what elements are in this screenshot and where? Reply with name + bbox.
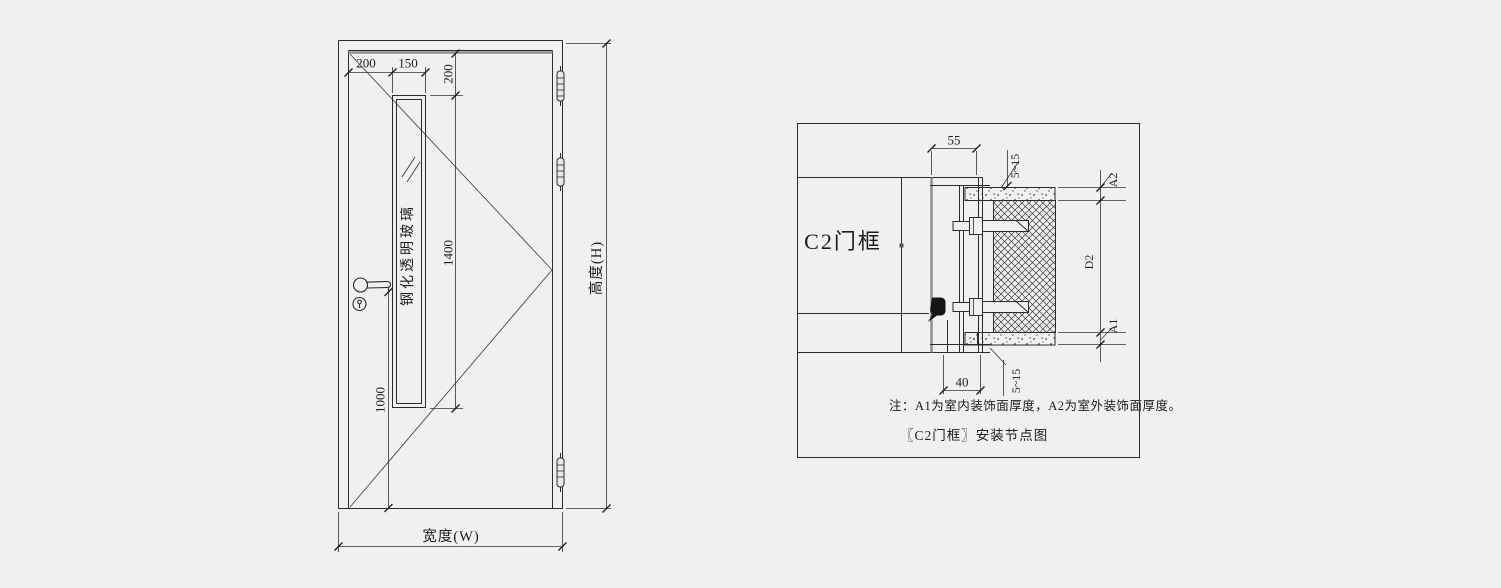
- door-handle: [353, 278, 391, 311]
- detail-caption: 〖C2门框〗安装节点图: [900, 429, 1048, 443]
- dim-handle-height: 1000: [374, 387, 387, 413]
- hinge-middle: [557, 153, 564, 191]
- wall-opening-lines: [798, 178, 991, 353]
- hinge-bottom: [557, 453, 564, 492]
- height-label: 高度(H): [590, 241, 605, 295]
- glass-panel-label: 钢化透明玻璃: [402, 204, 416, 306]
- anchor-bolt-top: [953, 218, 1029, 235]
- width-label: 宽度(W): [422, 530, 479, 545]
- anchor-bolt-bottom: [953, 299, 1029, 316]
- dim-gap-top: 5~15: [1009, 154, 1021, 179]
- dim-glass-height: 1400: [442, 240, 455, 266]
- frame-label: C2门框: [804, 231, 882, 253]
- label-outdoor-finish: A2: [1107, 173, 1119, 188]
- hinge-top: [557, 66, 564, 106]
- door-swing-lines: [350, 54, 552, 507]
- dim-stop-width: 40: [956, 376, 969, 389]
- dim-left-margin: 200: [356, 57, 376, 70]
- dim-glass-width: 150: [398, 57, 418, 70]
- detail-note: 注：A1为室内装饰面厚度，A2为室外装饰面厚度。: [889, 400, 1182, 413]
- linework-layer: [0, 0, 1501, 588]
- cad-drawing-canvas: 200 150 200 1400 1000 钢化透明玻璃 宽度(W) 高度(H)…: [0, 0, 1501, 588]
- dim-gap-bottom: 5~15: [1010, 369, 1022, 394]
- label-wall-thickness: D2: [1083, 255, 1095, 270]
- frame-profile: [930, 178, 990, 353]
- dim-top-margin: 200: [442, 64, 455, 84]
- label-indoor-finish: A1: [1107, 319, 1119, 334]
- dim-frame-depth: 55: [948, 134, 961, 147]
- door-dimension-lines: [339, 44, 612, 553]
- dimension-ticks: [335, 40, 1105, 551]
- door-frame: [339, 41, 563, 510]
